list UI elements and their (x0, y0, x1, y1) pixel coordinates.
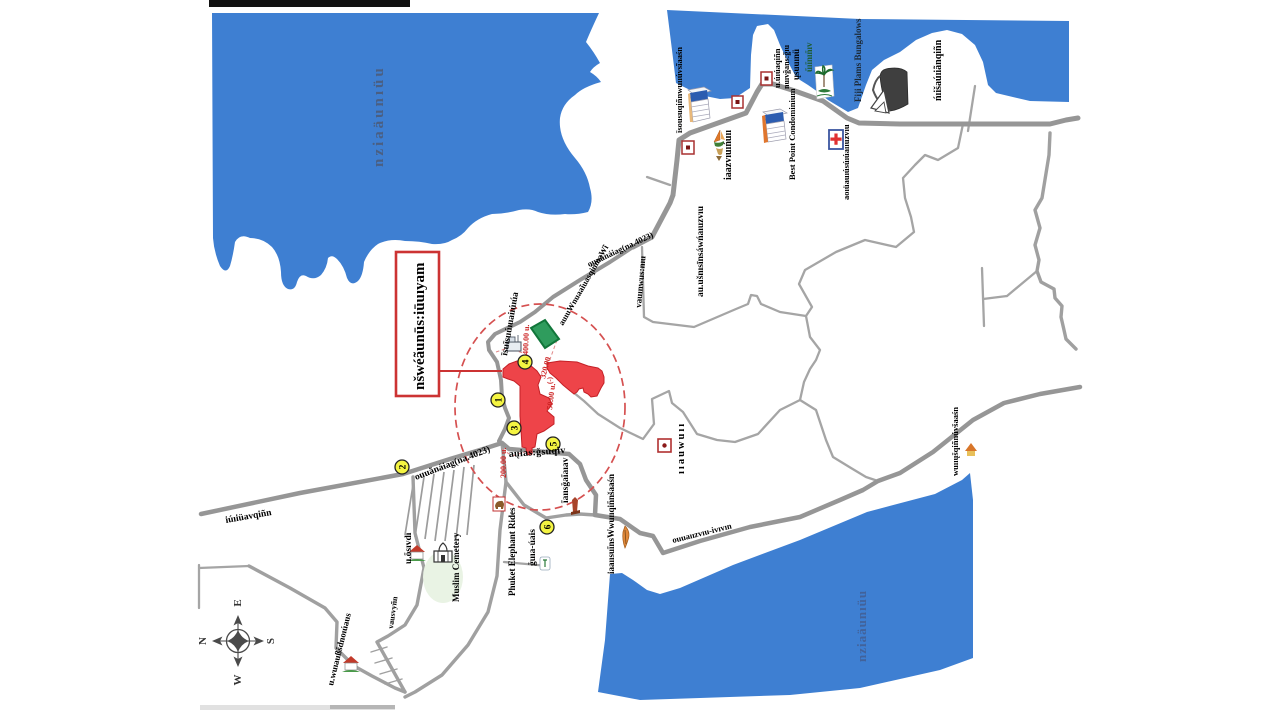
svg-text:S: S (265, 638, 277, 644)
svg-text:vausvyñn: vausvyñn (386, 595, 400, 629)
svg-text:ĩaıısğaĩaıav: ĩaıısğaĩaıav (561, 457, 571, 504)
svg-text:u.wuıaußšdnoıúaus: u.wuıaußšdnoıúaus (325, 611, 353, 686)
svg-text:ųsuuınü: ųsuuınü (791, 49, 801, 80)
svg-text:200.00 u.: 200.00 u. (499, 448, 508, 478)
svg-text:aoıüauıúsúıúaııuzvıu: aoıüauıúsúıúaııuzvıu (841, 124, 851, 200)
svg-text:400.00 u.: 400.00 u. (521, 324, 531, 355)
svg-text:4: 4 (521, 359, 531, 364)
svg-text:u.õsıvdı: u.õsıvdı (404, 532, 414, 564)
svg-text:50.00 u.: 50.00 u. (545, 383, 557, 410)
svg-text:Muslim Cemetery: Muslim Cemetery (451, 532, 461, 602)
svg-text:vauınwus:nıu: vauınwus:nıu (633, 255, 647, 308)
svg-text:au.ušnısīnsáwńaıuzvıu: au.ušnısīnsáwńaıuzvıu (696, 205, 706, 297)
svg-text:nziaäunıüu: nziaäunıüu (371, 65, 387, 167)
svg-text:ũıĩnıñıv: ũıĩnıñıv (804, 42, 814, 72)
svg-text:W: W (232, 675, 244, 686)
svg-text:iaazvıuıńuıı: iaazvıuıńuıı (723, 130, 734, 180)
svg-text:iúıiüavqiñn: iúıiüavqiñn (225, 508, 273, 526)
svg-text:N: N (197, 637, 209, 645)
svg-text:īsousuqiñnwuııúvsĩaaśn: īsousuqiñnwuııúvsĩaaśn (674, 47, 684, 134)
svg-text:ııauwuıı: ııauwuıı (676, 422, 687, 474)
svg-text:Best Point Condominium: Best Point Condominium (787, 88, 797, 180)
svg-text:nziaäunıüu: nziaäunıüu (854, 590, 869, 662)
svg-text:1: 1 (494, 397, 504, 402)
svg-text:6: 6 (543, 524, 553, 529)
svg-text:nuıvğans:ğıu: nuıvğans:ğıu (782, 44, 791, 89)
svg-text:ğuıa-úais: ğuıa-úais (528, 529, 538, 566)
svg-text:Phuket Elephant Rides: Phuket Elephant Rides (507, 507, 517, 596)
svg-text:ńıišaúıiãnqiñn: ńıišaúıiãnqiñn (933, 39, 944, 101)
svg-text:iaaıısuĩnsWwuııqiñnšaaśn: iaaıısuĩnsWwuııqiñnšaaśn (606, 474, 616, 574)
svg-text:(-): (-) (546, 376, 554, 384)
svg-text:E: E (232, 599, 244, 606)
svg-text:3: 3 (510, 425, 520, 430)
svg-text:aųias:ğsuqĩv: aųias:ğsuqĩv (508, 445, 566, 460)
svg-text:nšwéãunūs:iūuıyam: nšwéãunūs:iūuıyam (412, 262, 428, 390)
svg-text:2: 2 (398, 464, 408, 469)
svg-text:wuııųšqiñnúvšaaśn: wuııųšqiñnúvšaaśn (950, 407, 960, 476)
svg-text:u.úıúaqiñn: u.úıúaqiñn (772, 48, 782, 88)
svg-text:Fiji Plams Bungalows: Fiji Plams Bungalows (853, 18, 863, 102)
